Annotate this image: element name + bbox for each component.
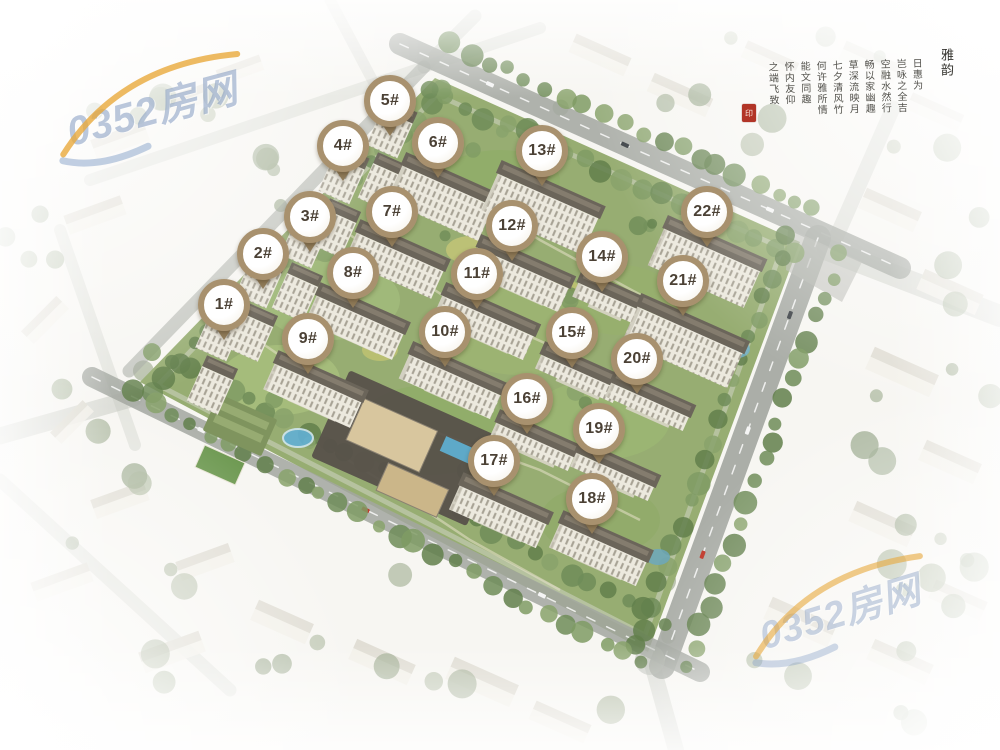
- tree: [647, 219, 657, 229]
- pin-circle: 5#: [364, 75, 416, 127]
- context-building: [763, 597, 837, 647]
- pin-circle: 7#: [366, 186, 418, 238]
- context-tree: [203, 83, 229, 109]
- tree: [312, 486, 324, 498]
- tree: [122, 379, 144, 401]
- tree: [635, 656, 648, 669]
- pin-label: 18#: [578, 491, 606, 507]
- tree: [601, 638, 615, 652]
- pin-circle: 2#: [237, 228, 289, 280]
- context-tree: [887, 140, 901, 154]
- pin-circle: 3#: [284, 191, 336, 243]
- pin-label: 14#: [588, 249, 616, 265]
- building-marker-19[interactable]: 19#: [572, 403, 626, 473]
- tree: [278, 469, 296, 487]
- tree: [421, 81, 439, 99]
- pin-circle: 12#: [486, 200, 538, 252]
- tree: [803, 199, 819, 215]
- tree: [633, 179, 653, 199]
- context-tree: [960, 553, 974, 567]
- tree: [482, 58, 497, 73]
- tree: [327, 492, 347, 512]
- context-building: [858, 188, 922, 233]
- tree: [537, 82, 552, 97]
- tree: [600, 582, 617, 599]
- tree: [751, 175, 770, 194]
- context-tree: [688, 83, 711, 106]
- tree: [718, 393, 731, 406]
- tree: [763, 432, 783, 452]
- tree: [164, 408, 178, 422]
- tree: [496, 125, 509, 138]
- context-tree: [256, 148, 278, 170]
- context-building: [918, 440, 982, 485]
- tree: [165, 355, 179, 369]
- building-marker-8[interactable]: 8#: [326, 247, 380, 317]
- pin-label: 21#: [669, 273, 697, 289]
- pin-circle: 22#: [681, 186, 733, 238]
- tree: [636, 128, 651, 143]
- pin-label: 22#: [693, 204, 721, 220]
- aerial-masterplan-rendering: 0352房网 0352房网 日惠为岂咏之全吉空融水然行畅以家幽趣草深流映月七夕清…: [0, 0, 1000, 750]
- context-tree: [656, 94, 674, 112]
- context-tree: [31, 206, 48, 223]
- context-tree: [164, 563, 177, 576]
- tree: [373, 520, 385, 532]
- tree: [617, 114, 633, 130]
- pin-label: 9#: [299, 331, 317, 347]
- tree: [483, 576, 503, 596]
- context-building: [741, 40, 799, 79]
- tree: [465, 142, 480, 157]
- tree: [516, 73, 529, 86]
- tree: [685, 493, 698, 506]
- tree: [422, 544, 444, 566]
- context-tree: [200, 107, 215, 122]
- context-tree: [724, 31, 737, 44]
- tree: [828, 273, 841, 286]
- tree: [788, 348, 808, 368]
- tree: [541, 554, 558, 571]
- tree: [438, 31, 460, 53]
- tree: [610, 169, 632, 191]
- pin-label: 13#: [528, 143, 556, 159]
- context-tree: [130, 107, 147, 124]
- tree: [632, 597, 655, 620]
- context-tree: [969, 207, 990, 228]
- tree: [704, 154, 725, 175]
- context-building: [906, 92, 964, 131]
- context-building: [216, 55, 265, 86]
- context-building: [90, 121, 149, 159]
- context-building: [30, 562, 93, 601]
- context-tree: [896, 641, 916, 661]
- tree: [734, 491, 758, 515]
- tree: [830, 244, 847, 261]
- context-tree: [943, 291, 968, 316]
- tree: [768, 418, 781, 431]
- tree: [519, 601, 533, 615]
- pin-circle: 16#: [501, 373, 553, 425]
- tree: [723, 534, 746, 557]
- tree: [146, 392, 167, 413]
- tree: [650, 182, 672, 204]
- pin-circle: 17#: [468, 435, 520, 487]
- tree: [595, 104, 614, 123]
- tree: [785, 370, 802, 387]
- pin-circle: 8#: [327, 247, 379, 299]
- context-building: [839, 41, 902, 84]
- building-marker-15[interactable]: 15#: [545, 307, 599, 377]
- tree: [500, 60, 513, 73]
- tree: [440, 230, 451, 241]
- tree: [675, 137, 693, 155]
- tree: [578, 573, 596, 591]
- tree: [776, 225, 795, 244]
- building-marker-20[interactable]: 20#: [610, 333, 664, 403]
- tree: [704, 573, 725, 594]
- pin-circle: 18#: [566, 473, 618, 525]
- pin-label: 7#: [383, 204, 401, 220]
- tree: [659, 618, 672, 631]
- tree: [655, 132, 674, 151]
- tree: [748, 474, 762, 488]
- context-tree: [874, 50, 886, 62]
- tree: [687, 613, 711, 637]
- pin-label: 1#: [215, 297, 233, 313]
- context-tree: [934, 251, 962, 279]
- context-tree: [933, 134, 961, 162]
- tree: [714, 555, 731, 572]
- pin-circle: 9#: [282, 313, 334, 365]
- context-tree: [978, 384, 1000, 408]
- tree: [773, 189, 786, 202]
- tree: [274, 408, 294, 428]
- tree: [734, 517, 748, 531]
- context-tree: [425, 672, 444, 691]
- pin-label: 5#: [381, 93, 399, 109]
- context-tree: [815, 27, 835, 47]
- tree: [347, 501, 368, 522]
- building-marker-14[interactable]: 14#: [575, 231, 629, 301]
- pin-circle: 21#: [657, 255, 709, 307]
- tree: [673, 517, 694, 538]
- building-marker-7[interactable]: 7#: [365, 186, 419, 256]
- tree: [751, 312, 768, 329]
- building-marker-18[interactable]: 18#: [565, 473, 619, 543]
- tree: [773, 388, 792, 407]
- context-tree: [52, 379, 73, 400]
- pin-circle: 14#: [576, 231, 628, 283]
- pin-circle: 6#: [412, 117, 464, 169]
- pin-label: 19#: [585, 421, 613, 437]
- pin-label: 16#: [513, 391, 541, 407]
- building-marker-5[interactable]: 5#: [363, 75, 417, 145]
- building-marker-2[interactable]: 2#: [236, 228, 290, 298]
- tree: [180, 358, 201, 379]
- context-tree: [741, 133, 764, 156]
- tree: [589, 160, 611, 182]
- pin-label: 17#: [480, 453, 508, 469]
- building-marker-16[interactable]: 16#: [500, 373, 554, 443]
- pin-circle: 13#: [516, 125, 568, 177]
- context-tree: [870, 389, 883, 402]
- context-tree: [746, 652, 762, 668]
- tree: [745, 229, 763, 247]
- tree: [818, 292, 832, 306]
- tree: [763, 270, 782, 289]
- context-tree: [941, 594, 965, 618]
- tree: [243, 392, 256, 405]
- pin-label: 2#: [254, 246, 272, 262]
- context-tree: [310, 635, 326, 651]
- building-marker-4[interactable]: 4#: [316, 120, 370, 190]
- context-tree: [946, 363, 959, 376]
- tree: [437, 88, 453, 104]
- pin-label: 3#: [301, 209, 319, 225]
- tree: [695, 450, 714, 469]
- road-line: [835, 108, 893, 240]
- context-building: [529, 701, 592, 744]
- tree: [257, 456, 274, 473]
- context-tree: [758, 104, 787, 133]
- context-tree: [20, 251, 37, 268]
- pin-circle: 4#: [317, 120, 369, 172]
- context-tree: [272, 654, 292, 674]
- tree: [788, 196, 801, 209]
- context-tree: [893, 705, 908, 720]
- tree: [449, 554, 462, 567]
- context-tree: [868, 447, 896, 475]
- context-tree: [86, 103, 103, 120]
- tree: [459, 102, 473, 116]
- building-marker-22[interactable]: 22#: [680, 186, 734, 256]
- pin-circle: 15#: [546, 307, 598, 359]
- context-building: [569, 34, 632, 77]
- context-tree: [784, 662, 812, 690]
- building-marker-6[interactable]: 6#: [411, 117, 465, 187]
- tree: [143, 343, 161, 361]
- context-tree: [86, 419, 111, 444]
- pin-label: 12#: [498, 218, 526, 234]
- tree: [540, 605, 558, 623]
- tree: [461, 44, 484, 67]
- pin-circle: 19#: [573, 403, 625, 455]
- tree: [775, 250, 791, 266]
- pin-label: 15#: [558, 325, 586, 341]
- building-marker-12[interactable]: 12#: [485, 200, 539, 270]
- context-tree: [448, 669, 477, 698]
- tree: [472, 108, 494, 130]
- context-tree: [388, 563, 412, 587]
- tree: [183, 418, 196, 431]
- context-tree: [153, 671, 176, 694]
- tree: [571, 621, 593, 643]
- tree: [646, 571, 667, 592]
- pin-label: 6#: [429, 135, 447, 151]
- context-building: [63, 195, 126, 234]
- pin-label: 4#: [334, 138, 352, 154]
- building-marker-9[interactable]: 9#: [281, 313, 335, 383]
- context-building: [250, 600, 314, 645]
- tree: [629, 216, 648, 235]
- tree: [687, 472, 711, 496]
- tree: [759, 451, 774, 466]
- context-tree: [141, 639, 170, 668]
- context-tree: [255, 658, 271, 674]
- pin-label: 20#: [623, 351, 651, 367]
- tree: [723, 163, 746, 186]
- context-tree: [66, 536, 79, 549]
- context-building: [21, 296, 69, 344]
- tree: [152, 367, 175, 390]
- context-tree: [917, 563, 945, 591]
- context-tree: [895, 514, 917, 536]
- building-marker-13[interactable]: 13#: [515, 125, 569, 195]
- context-tree: [896, 583, 910, 597]
- tree: [680, 661, 692, 673]
- tree: [808, 307, 823, 322]
- tree: [466, 563, 481, 578]
- building-marker-17[interactable]: 17#: [467, 435, 521, 505]
- tree: [401, 529, 425, 553]
- context-tree: [877, 549, 907, 579]
- tree: [708, 410, 727, 429]
- context-tree: [934, 533, 946, 545]
- pin-label: 8#: [344, 265, 362, 281]
- context-tree: [149, 87, 173, 111]
- context-tree: [0, 227, 15, 246]
- tree: [613, 641, 632, 660]
- context-tree: [171, 573, 198, 600]
- context-tree: [46, 250, 64, 268]
- water-park-pool: [283, 429, 313, 447]
- context-tree: [374, 653, 400, 679]
- pin-circle: 20#: [611, 333, 663, 385]
- tree: [572, 95, 591, 114]
- building-marker-21[interactable]: 21#: [656, 255, 710, 325]
- context-tree: [128, 471, 152, 495]
- tree: [688, 640, 705, 657]
- context-tree: [597, 696, 625, 724]
- pin-label: 10#: [431, 324, 459, 340]
- tree: [754, 288, 770, 304]
